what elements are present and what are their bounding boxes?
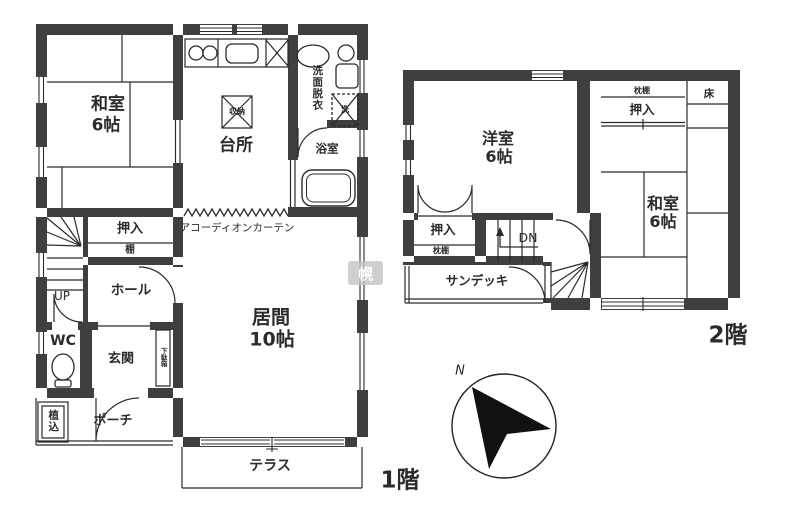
room-label-kitchen: 台所 [219,138,253,155]
label-pillow-shelf-left: 枕棚 [433,247,449,255]
label-accordion-curtain: アコーディオンカーテン [180,223,295,234]
label-closet-top: 押入 [629,104,654,117]
room-label-entrance: 玄関 [108,353,134,366]
room-label-washitsu2-size: 6帖 [649,214,676,230]
floor1-door-arcs [54,128,327,441]
stove-burner-icon [203,46,217,60]
room-label-wc: WC [50,334,76,348]
toilet-base [55,380,71,387]
room-label-bathroom: 浴室 [316,143,339,155]
label-closet-left: 押入 [430,224,455,237]
label-pillow-shelf-top: 枕棚 [634,87,650,95]
bathroom-fixtures [302,170,355,206]
label-kitchen-storage: 収納 [229,108,245,116]
floor1-title: 1階 [380,470,419,493]
kitchen-fixtures [189,44,258,63]
label-shoe-cabinet: 下駄箱 [160,347,167,367]
arrow-head [496,227,504,236]
floor2-thin-lines [405,81,728,303]
label-shelf: 棚 [125,245,135,255]
accordion-curtain-zigzag [184,209,288,216]
room-label-western-name: 洋室 [482,131,514,147]
floorplan-page: 和室 6帖 台所 収納 洗面脱衣 洗 浴室 押入 棚 アコーディオンカーテン 居… [0,0,800,529]
room-label-hall: ホール [111,284,152,298]
label-closet-f1: 押入 [117,223,143,236]
room-label-porch: ポーチ [93,415,132,428]
label-stairs-down: DN [519,232,538,245]
label-laundry-mark: 洗 [341,106,349,114]
room-label-washitsu1-name: 和室 [91,97,125,114]
floor2-title: 2階 [708,325,747,348]
room-label-terrace: テラス [249,459,291,473]
stove-burner-icon [189,46,203,60]
room-label-washitsu1-size: 6帖 [92,118,121,135]
floorplan-canvas [0,0,800,529]
fixture-box-icon [336,64,358,88]
watermark: 幌 [348,261,383,285]
north-arrow-icon [472,387,551,469]
compass [452,374,556,478]
room-label-living-name: 居間 [252,309,290,328]
room-label-washroom: 洗面脱衣 [312,65,323,111]
kitchen-sink-icon [226,44,258,63]
fixture-round-icon [338,45,354,61]
label-stairs-up: UP [54,290,70,302]
room-label-western-size: 6帖 [485,149,512,165]
label-tokonoma: 床 [704,89,715,100]
label-planting: 植込 [48,410,59,433]
wash-basin-icon [297,45,329,67]
room-label-living-size: 10帖 [249,331,294,350]
toilet-bowl [52,354,74,380]
bathtub-inner [307,174,351,202]
compass-north-label: N [455,365,465,378]
toilet-icon [52,354,74,387]
room-label-washitsu2-name: 和室 [647,196,679,212]
room-label-sundeck: サンデッキ [446,275,509,288]
